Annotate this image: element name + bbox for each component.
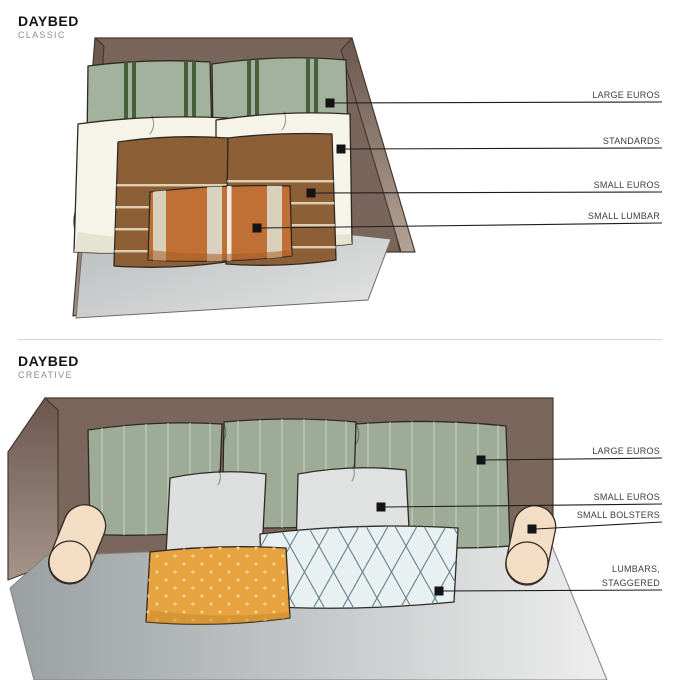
marker-small-bolsters [528,525,537,534]
lumbar-diamond-pattern [260,526,458,608]
label-small-lumbar: SMALL LUMBAR [588,211,660,221]
marker-large-euros [477,456,486,465]
marker-small-lumbar [253,224,262,233]
marker-standards [337,145,346,154]
callout-line-large-euros [334,102,662,103]
label-small-bolsters: SMALL BOLSTERS [577,510,660,520]
marker-large-euros [326,99,335,108]
pillow-arrangement-diagram: DAYBED CLASSIC [0,0,680,680]
label-small-euros: SMALL EUROS [594,180,660,190]
pillows-classic [74,48,352,270]
section-divider [18,339,662,340]
label-large-euros: LARGE EUROS [592,90,660,100]
label-lumbars-line1: LUMBARS, [612,564,660,574]
small-euro-1 [166,472,266,557]
classic-illustration: LARGE EUROS STANDARDS SMALL EUROS SMALL … [0,0,680,340]
label-standards: STANDARDS [603,136,660,146]
marker-lumbars [435,587,444,596]
label-lumbars-line2: STAGGERED [602,578,660,588]
creative-illustration: LARGE EUROS SMALL EUROS SMALL BOLSTERS L… [0,345,680,680]
marker-small-euros [307,189,316,198]
bolster-left-cap [49,541,91,583]
bolster-right-cap [506,542,548,584]
label-large-euros: LARGE EUROS [592,446,660,456]
callout-line-standards [345,148,662,149]
marker-small-euros [377,503,386,512]
label-small-euros: SMALL EUROS [594,492,660,502]
